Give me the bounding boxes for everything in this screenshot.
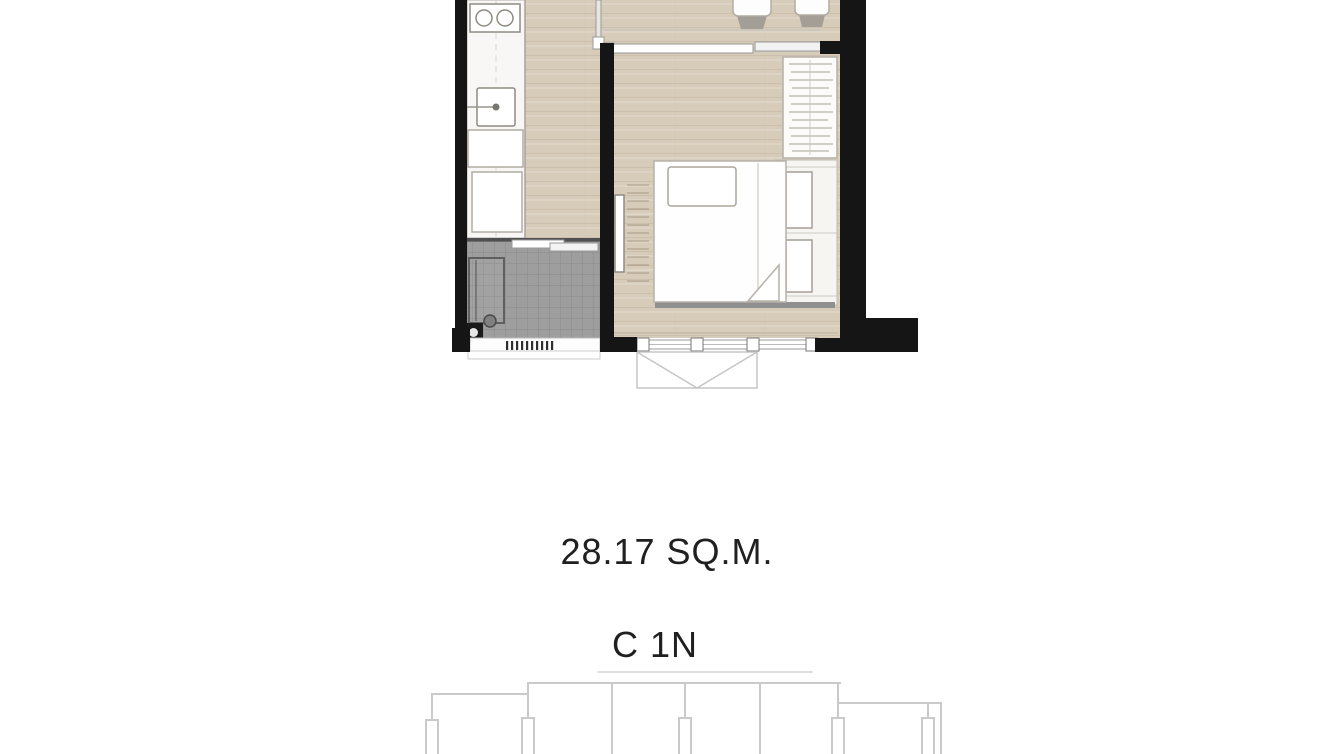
unit-label: C 1N [455,624,855,666]
tv-icon [615,195,624,272]
bed [654,161,786,302]
kitchen-cabinets [468,130,523,232]
exterior-ledge [468,351,600,359]
key-plan [426,672,941,754]
pillow [668,167,736,206]
window-casement-symbol [637,352,757,388]
bed-shadow [655,302,835,308]
wardrobe [783,57,837,158]
floor-plan-page: 28.17 SQ.M. C 1N [0,0,1342,754]
cooktop-icon [470,4,520,32]
area-label: 28.17 SQ.M. [467,531,867,573]
drain-icon [484,315,496,327]
shower [469,258,504,327]
vent-louver [468,338,600,359]
